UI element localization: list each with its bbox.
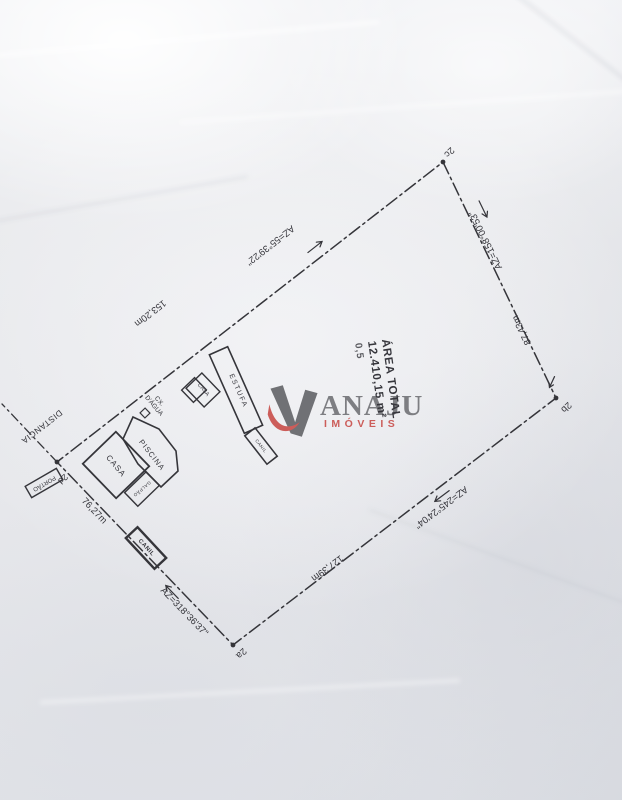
cx-dagua-outline xyxy=(140,408,150,418)
anaju-logo-icon xyxy=(266,381,322,441)
scanned-survey-document: ANAJU IMÓVEIS AZ=55°39'22" 153,20m AZ=15… xyxy=(0,0,622,800)
